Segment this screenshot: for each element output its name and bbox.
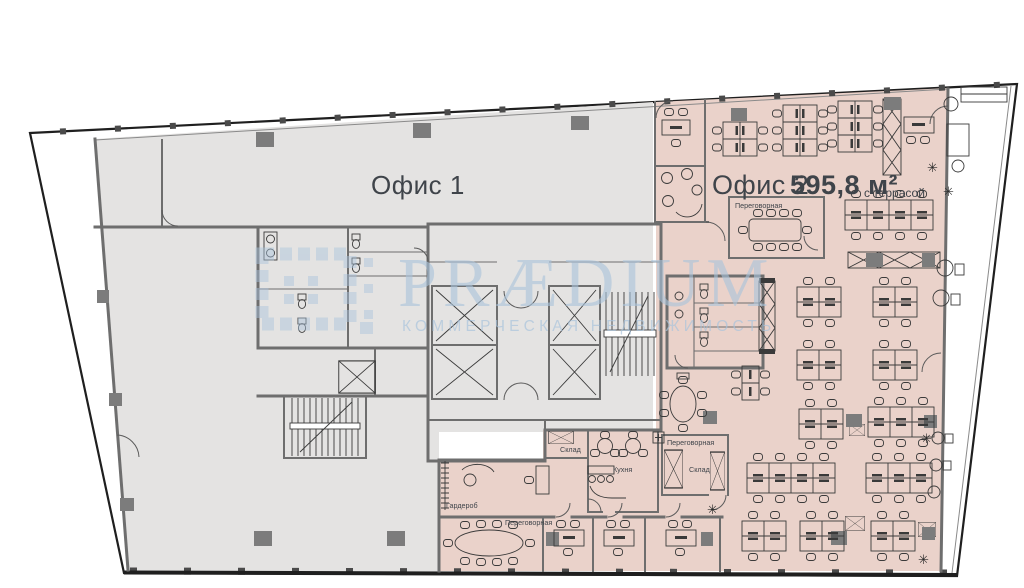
meeting-room-label: Переговорная (505, 518, 552, 527)
watermark-title: PRÆDIUM (398, 245, 775, 322)
storage-label: Склад (689, 465, 711, 474)
column (120, 498, 134, 511)
kitchen-label: Кухня (613, 465, 632, 474)
column (731, 108, 747, 121)
plant-icon: ✳ (927, 160, 938, 175)
column (254, 531, 272, 546)
column (884, 97, 901, 110)
plant-icon: ✳ (921, 431, 932, 446)
column (413, 123, 431, 138)
column (846, 414, 862, 427)
plant-icon: ✳ (918, 552, 929, 567)
column (97, 290, 109, 303)
column (922, 253, 935, 267)
meeting-room-label: Переговорная (667, 438, 714, 447)
column (703, 411, 717, 424)
column (866, 253, 883, 267)
floor-plan: ✳ ✳ ✳ ✳ ✳ PRÆDIUM КОММЕРЧЕСКАЯ НЕДВИЖИМО… (0, 0, 1024, 588)
meeting-room-label: Переговорная (735, 201, 782, 210)
office1-label: Офис 1 (371, 170, 465, 200)
floor-plan-canvas: ✳ ✳ ✳ ✳ ✳ PRÆDIUM КОММЕРЧЕСКАЯ НЕДВИЖИМО… (0, 0, 1024, 588)
office2-terrace-note: с террасой (864, 186, 925, 200)
storage-label: Склад (560, 445, 582, 454)
column (701, 532, 713, 546)
column (924, 415, 937, 428)
column (109, 393, 122, 406)
column (546, 532, 559, 546)
column (571, 116, 589, 130)
column (256, 132, 274, 147)
wardrobe-label: Гардероб (446, 501, 478, 510)
plant-icon: ✳ (707, 502, 718, 517)
column (922, 527, 935, 540)
plant-icon: ✳ (943, 184, 954, 199)
column (387, 531, 405, 546)
desk-cluster (866, 454, 932, 503)
watermark-subtitle: КОММЕРЧЕСКАЯ НЕДВИЖИМОСТЬ (402, 318, 775, 335)
